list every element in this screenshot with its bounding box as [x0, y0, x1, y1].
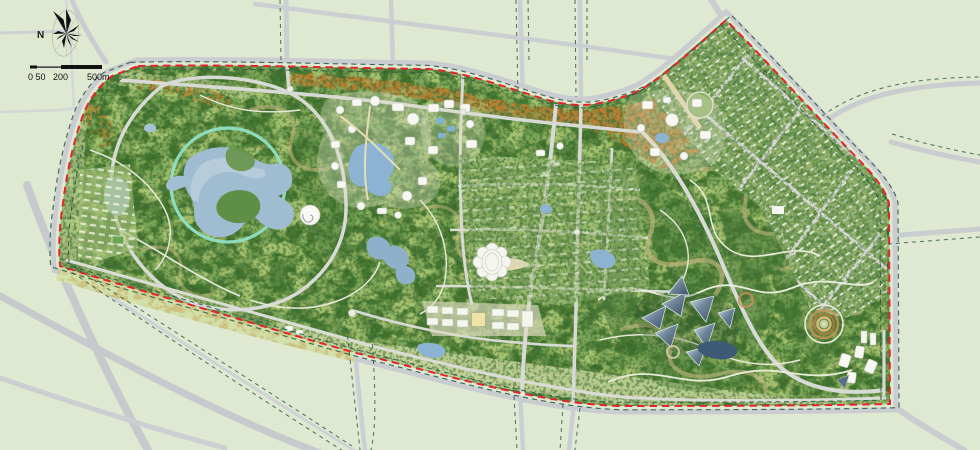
svg-text:N: N [37, 30, 44, 41]
svg-text:500m: 500m [87, 72, 110, 82]
svg-text:200: 200 [53, 72, 68, 82]
svg-text:0 50: 0 50 [28, 72, 46, 82]
